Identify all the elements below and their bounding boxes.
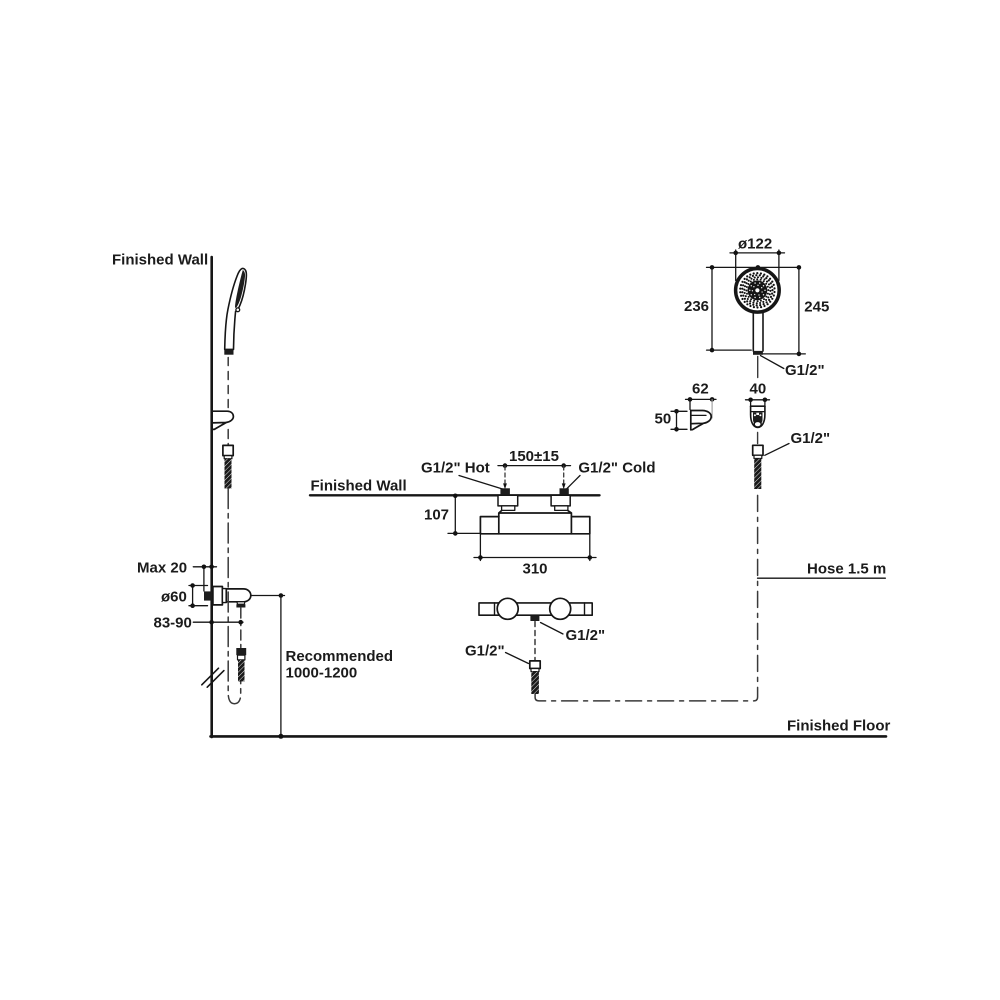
svg-text:ø60: ø60 xyxy=(161,589,187,606)
svg-text:G1/2": G1/2" xyxy=(465,643,505,660)
svg-text:ø122: ø122 xyxy=(738,236,772,253)
svg-text:G1/2": G1/2" xyxy=(785,362,825,379)
svg-text:G1/2" Hot: G1/2" Hot xyxy=(421,459,490,476)
svg-text:310: 310 xyxy=(523,561,548,578)
svg-text:G1/2": G1/2" xyxy=(566,627,606,644)
svg-text:62: 62 xyxy=(692,381,709,398)
svg-text:1000-1200: 1000-1200 xyxy=(286,665,358,682)
svg-text:Finished Wall: Finished Wall xyxy=(311,478,407,495)
svg-text:Max 20: Max 20 xyxy=(137,560,187,577)
svg-text:245: 245 xyxy=(804,298,829,315)
svg-text:Finished Floor: Finished Floor xyxy=(787,718,890,735)
svg-text:83-90: 83-90 xyxy=(154,615,192,632)
svg-text:G1/2" Cold: G1/2" Cold xyxy=(578,459,655,476)
svg-text:107: 107 xyxy=(424,507,449,524)
svg-text:Finished Wall: Finished Wall xyxy=(112,252,208,269)
svg-text:Recommended: Recommended xyxy=(286,648,394,665)
svg-text:236: 236 xyxy=(684,298,709,315)
svg-text:40: 40 xyxy=(750,381,767,398)
svg-text:G1/2": G1/2" xyxy=(791,430,831,447)
svg-text:150±15: 150±15 xyxy=(509,448,559,465)
svg-text:Hose 1.5 m: Hose 1.5 m xyxy=(807,561,886,578)
svg-text:50: 50 xyxy=(655,411,672,428)
